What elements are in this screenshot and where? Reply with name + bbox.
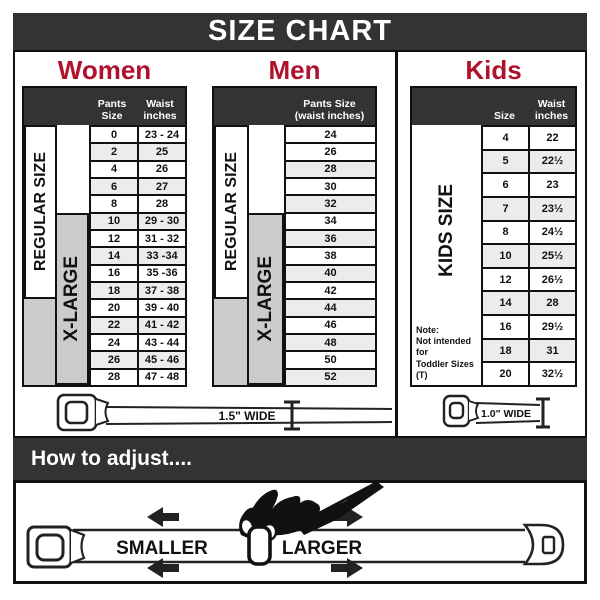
table-cell: 22 <box>530 127 575 149</box>
kids-note: Note: Not intended for Toddler Sizes (T) <box>416 325 481 381</box>
table-cell: 5 <box>483 151 528 173</box>
table-cell: 23 <box>530 174 575 196</box>
table-cell: 10 <box>483 245 528 267</box>
table-cell: 45 - 46 <box>139 352 185 367</box>
adjust-illustration: SMALLER LARGER <box>16 483 584 581</box>
table-cell: 24 <box>91 335 137 350</box>
table-cell: 47 - 48 <box>139 370 185 385</box>
kids-divider-line <box>395 50 398 438</box>
table-cell: 16 <box>91 266 137 281</box>
table-cell: 26 <box>139 162 185 177</box>
table-cell: 50 <box>286 352 375 367</box>
table-cell: 32½ <box>530 363 575 385</box>
men-title: Men <box>212 54 377 86</box>
women-header-pants-size: Pants Size <box>89 98 135 122</box>
kids-header-size: Size <box>481 110 528 122</box>
men-table-body: 242628303234363840424446485052 <box>284 125 375 385</box>
page-title: SIZE CHART <box>13 13 587 50</box>
table-cell: 28 <box>286 162 375 177</box>
table-cell: 26½ <box>530 269 575 291</box>
men-header-pants-size: Pants Size (waist inches) <box>284 98 375 122</box>
table-cell: 24½ <box>530 222 575 244</box>
kids-table-header: Size Waist inches <box>412 88 575 125</box>
table-cell: 42 <box>286 283 375 298</box>
table-cell: 35 -36 <box>139 266 185 281</box>
table-cell: 48 <box>286 335 375 350</box>
table-cell: 22½ <box>530 151 575 173</box>
women-size-table: Pants Size Waist inches REGULAR SIZE X-L… <box>22 86 187 387</box>
table-cell: 40 <box>286 266 375 281</box>
table-cell: 44 <box>286 300 375 315</box>
table-cell: 14 <box>91 248 137 263</box>
table-cell: 25 <box>139 144 185 159</box>
table-cell: 24 <box>286 127 375 142</box>
kids-label-column: KIDS SIZE Note: Not intended for Toddler… <box>412 125 481 385</box>
table-cell: 32 <box>286 196 375 211</box>
table-cell: 10 <box>91 214 137 229</box>
women-header-waist: Waist inches <box>135 98 185 122</box>
table-cell: 31 <box>530 340 575 362</box>
table-cell: 6 <box>91 179 137 194</box>
table-cell: 22 <box>91 318 137 333</box>
table-cell: 6 <box>483 174 528 196</box>
table-cell: 7 <box>483 198 528 220</box>
table-cell: 18 <box>91 283 137 298</box>
table-cell: 14 <box>483 292 528 314</box>
table-cell: 41 - 42 <box>139 318 185 333</box>
table-cell: 18 <box>483 340 528 362</box>
kids-title: Kids <box>410 54 577 86</box>
women-title: Women <box>22 54 187 86</box>
adult-belt-width-label: 1.5" WIDE <box>218 409 275 423</box>
men-label-column: REGULAR SIZE X-LARGE <box>214 125 284 385</box>
men-size-table: Pants Size (waist inches) REGULAR SIZE X… <box>212 86 377 387</box>
table-cell: 39 - 40 <box>139 300 185 315</box>
table-cell: 43 - 44 <box>139 335 185 350</box>
table-cell: 23½ <box>530 198 575 220</box>
table-cell: 36 <box>286 231 375 246</box>
table-cell: 26 <box>91 352 137 367</box>
table-cell: 29 - 30 <box>139 214 185 229</box>
kids-belt-width-label: 1.0" WIDE <box>481 408 531 420</box>
women-table-body: 023 - 242254266278281029 - 301231 - 3214… <box>89 125 185 385</box>
women-table-header: Pants Size Waist inches <box>24 88 185 125</box>
table-cell: 31 - 32 <box>139 231 185 246</box>
table-cell: 12 <box>483 269 528 291</box>
table-cell: 23 - 24 <box>139 127 185 142</box>
table-cell: 4 <box>483 127 528 149</box>
men-table-header: Pants Size (waist inches) <box>214 88 375 125</box>
table-cell: 20 <box>91 300 137 315</box>
larger-label: LARGER <box>282 538 363 559</box>
table-cell: 26 <box>286 144 375 159</box>
table-cell: 2 <box>91 144 137 159</box>
table-cell: 33 -34 <box>139 248 185 263</box>
men-regular-size-box: REGULAR SIZE <box>214 125 249 299</box>
kids-header-waist: Waist inches <box>528 98 575 122</box>
table-cell: 8 <box>483 222 528 244</box>
table-cell: 52 <box>286 370 375 385</box>
smaller-label: SMALLER <box>116 538 208 559</box>
how-to-adjust-title: How to adjust.... <box>13 438 587 480</box>
women-xlarge-box: X-LARGE <box>55 213 89 385</box>
table-cell: 46 <box>286 318 375 333</box>
table-cell: 28 <box>91 370 137 385</box>
table-cell: 28 <box>139 196 185 211</box>
table-cell: 12 <box>91 231 137 246</box>
table-cell: 29½ <box>530 316 575 338</box>
table-cell: 30 <box>286 179 375 194</box>
table-cell: 37 - 38 <box>139 283 185 298</box>
table-cell: 4 <box>91 162 137 177</box>
table-cell: 38 <box>286 248 375 263</box>
men-xlarge-box: X-LARGE <box>247 213 284 385</box>
table-cell: 27 <box>139 179 185 194</box>
table-cell: 0 <box>91 127 137 142</box>
women-regular-size-box: REGULAR SIZE <box>24 125 57 299</box>
kids-size-box: KIDS SIZE <box>412 145 481 315</box>
table-cell: 20 <box>483 363 528 385</box>
size-chart-infographic: SIZE CHART Women Men Kids Pants Size Wai… <box>0 0 600 600</box>
arrow-left-icon <box>147 507 179 527</box>
adult-belt-illustration: 1.5" WIDE <box>15 388 395 438</box>
table-cell: 28 <box>530 292 575 314</box>
kids-belt-illustration: 1.0" WIDE <box>400 388 590 438</box>
belt-adjuster-slider <box>249 527 270 564</box>
women-label-column: REGULAR SIZE X-LARGE <box>24 125 89 385</box>
kids-table-body: 422522½623723½824½1025½1226½14281629½183… <box>481 125 575 385</box>
kids-size-table: Size Waist inches KIDS SIZE Note: Not in… <box>410 86 577 387</box>
table-cell: 8 <box>91 196 137 211</box>
table-cell: 16 <box>483 316 528 338</box>
table-cell: 34 <box>286 214 375 229</box>
table-cell: 25½ <box>530 245 575 267</box>
